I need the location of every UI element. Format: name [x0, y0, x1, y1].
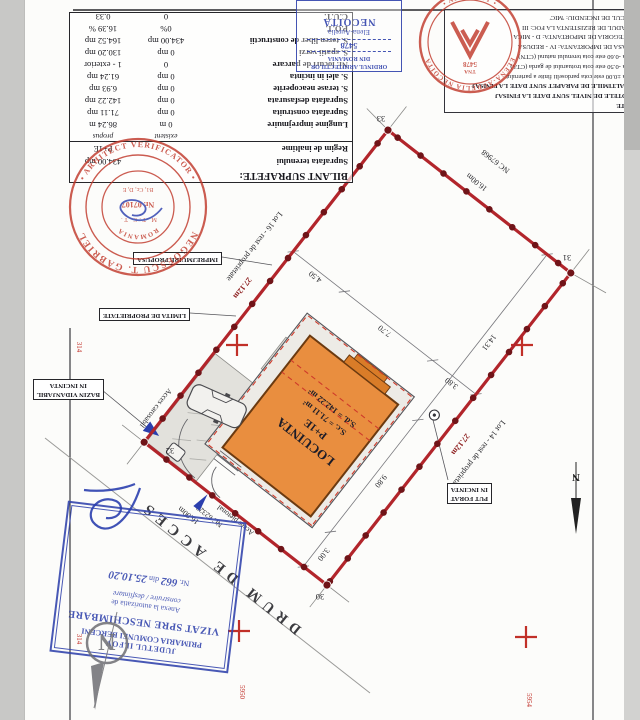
dim-9-80: 9.80 [373, 473, 389, 490]
note-line: Cota -0.60 este cota terenului natural (… [449, 51, 635, 61]
dim-7-70: 7.70 [376, 323, 393, 339]
notes-box: NOTE *COTELE DE NIVEL SUNT DATE LA FINIS… [444, 9, 640, 113]
dim-3-00: 3.00 [316, 546, 332, 563]
dim-3-80: 3.80 [443, 376, 460, 392]
note-line: *COTELE DE NIVEL SUNT DATE LA FINISAJ [449, 90, 635, 100]
note-line: CATEGORIA DE IMPORTANTA: D - MICA [449, 32, 635, 42]
bazin-label: BAZIN VIDANJABIL IN INCINTA [33, 379, 104, 400]
height-regime-label: Regim de inaltime [196, 142, 352, 155]
dim-14-31: 14.31 [480, 333, 498, 353]
well-symbol [427, 408, 441, 422]
col-propus: propus [70, 131, 136, 141]
oar-line2: DIN ROMANIA [297, 54, 401, 62]
dim-4-50: 4.50 [307, 269, 324, 285]
land-area-value: 434.00 mp [70, 155, 136, 168]
scanned-site-plan: DRUM DE ACCES 314 314 5950 5954 N [0, 0, 640, 720]
note-line: GRADUL DE REZISTENTA LA FOC: III [449, 22, 635, 32]
table-title: BILANT SUPRAFETE: [70, 168, 352, 182]
table-row: Suprafata desfasurata0 mp142.22 mp [70, 95, 352, 107]
rotated-document: DRUM DE ACCES 314 314 5950 5954 N [0, 0, 640, 720]
scan-edge-right-dark [624, 0, 640, 150]
north-arrow-small: N [571, 462, 581, 534]
grid-label: 5950 [238, 685, 246, 700]
notes-title: NOTE [449, 100, 635, 110]
note-line: *INALTIMILE DE PARAPET SUNT DATE LA FINI… [449, 81, 635, 91]
put-forat-label: PUT FORAT IN INCINTA [447, 483, 492, 504]
table-row: S. alei in incinta0 mp61.24 mp [70, 71, 352, 83]
limita-label: LIMITA DE PROPRIETATE [99, 309, 190, 322]
grid-label: 314 [75, 342, 83, 353]
corner-30: 30 [316, 592, 325, 602]
oar-number: 5478 [307, 39, 391, 52]
table-row: Lungime imprejmuire0 m86.24 m [70, 119, 352, 131]
oar-architect-stamp: ORDINUL ARHITECTILOR DIN ROMANIA 5478 El… [296, 0, 402, 72]
land-area-label: Suprafata terenului [196, 155, 352, 168]
corner-33: 33 [377, 114, 386, 124]
north-label: N [572, 471, 580, 483]
oar-firstname: Elena-Aurelia [297, 27, 401, 37]
oar-line1: ORDINUL ARHITECTILOR [297, 62, 401, 70]
stamp-date-handwritten: 25.10.20 [108, 568, 148, 585]
scan-edge-left [0, 0, 25, 720]
grid-label: 5954 [525, 693, 533, 708]
dim-27-12-left: 27.12m [449, 432, 471, 457]
note-line: RISCUL DE INCENDIU: 'MIC' [449, 12, 635, 22]
note-line: Cota -0.50 este cota trotuarului de gard… [449, 61, 635, 71]
note-line: CLASA DE IMPORTANTA: IV - REDUSA [449, 41, 635, 51]
table-row: Suprafata construita0 mp71.11 mp [70, 107, 352, 119]
table-row: S. terase neacoperite0 mp6.93 mp [70, 83, 352, 95]
vizat-stamp: JUDETUL ILFOV PRIMARIA COMUNEI BERCENI V… [49, 501, 246, 674]
oar-lastname: NECOITA [297, 16, 401, 27]
corner-31: 31 [563, 253, 572, 263]
corner-32: 32 [166, 446, 175, 456]
note-line: Cota ±0.00 este cota pardoselii finite a… [449, 71, 635, 81]
imprejmuire-label: IMPREJMUIRE PROPUSA [133, 253, 222, 266]
height-regime-value: P+1E [70, 142, 136, 155]
col-existent: existent [136, 131, 196, 141]
stamp-number-handwritten: 662 [160, 575, 178, 589]
nc-67968-label: NC 67968 [480, 148, 512, 175]
